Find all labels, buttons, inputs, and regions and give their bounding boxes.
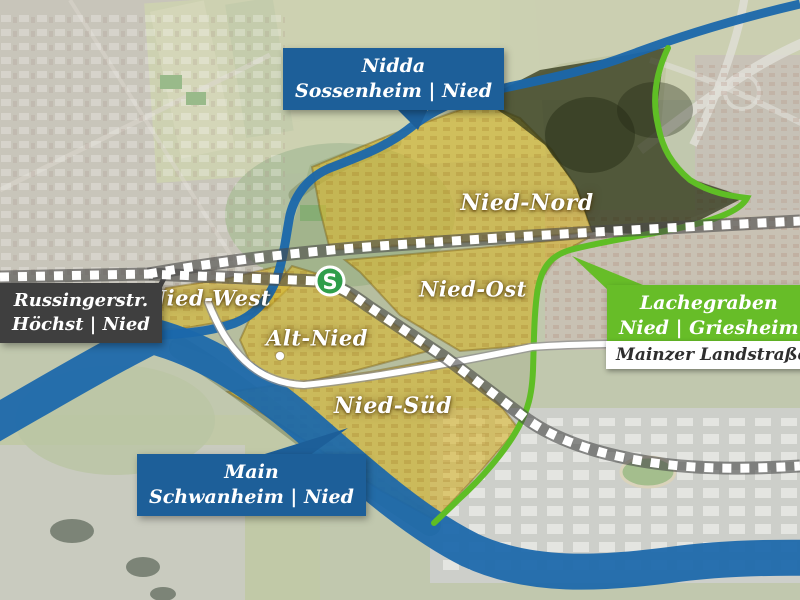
district-label-alt-nied: Alt-Nied [266, 326, 368, 351]
callout-lachegraben-line2: Nied | Griesheim [619, 316, 799, 341]
location-dot [276, 352, 285, 361]
map-canvas: S Nied-Nord Nied-Ost Nied-West Alt-Nied … [0, 0, 800, 600]
callout-mainzer-landstrasse: Mainzer Landstraße [606, 341, 800, 369]
callout-main: Main Schwanheim | Nied [137, 454, 366, 516]
district-label-nied-ost: Nied-Ost [419, 277, 527, 302]
district-label-nied-nord: Nied-Nord [460, 190, 593, 216]
callout-main-line1: Main [149, 460, 354, 485]
callout-lachegraben-line1: Lachegraben [619, 291, 799, 316]
callout-nidda-line2: Sossenheim | Nied [295, 79, 492, 104]
district-label-nied-west: Nied-West [147, 286, 271, 311]
district-label-nied-sued: Nied-Süd [334, 393, 452, 419]
sbahn-s-glyph: S [322, 270, 337, 294]
callout-lachegraben: Lachegraben Nied | Griesheim [607, 285, 800, 347]
callout-main-line2: Schwanheim | Nied [149, 485, 354, 510]
callout-nidda: Nidda Sossenheim | Nied [283, 48, 504, 110]
callout-nidda-line1: Nidda [295, 54, 492, 79]
sbahn-station-logo: S [315, 266, 346, 297]
callout-russingerstr-line2: Höchst | Nied [12, 313, 150, 337]
callout-russingerstr-line1: Russingerstr. [12, 289, 150, 313]
callout-russingerstr: Russingerstr. Höchst | Nied [0, 283, 162, 343]
